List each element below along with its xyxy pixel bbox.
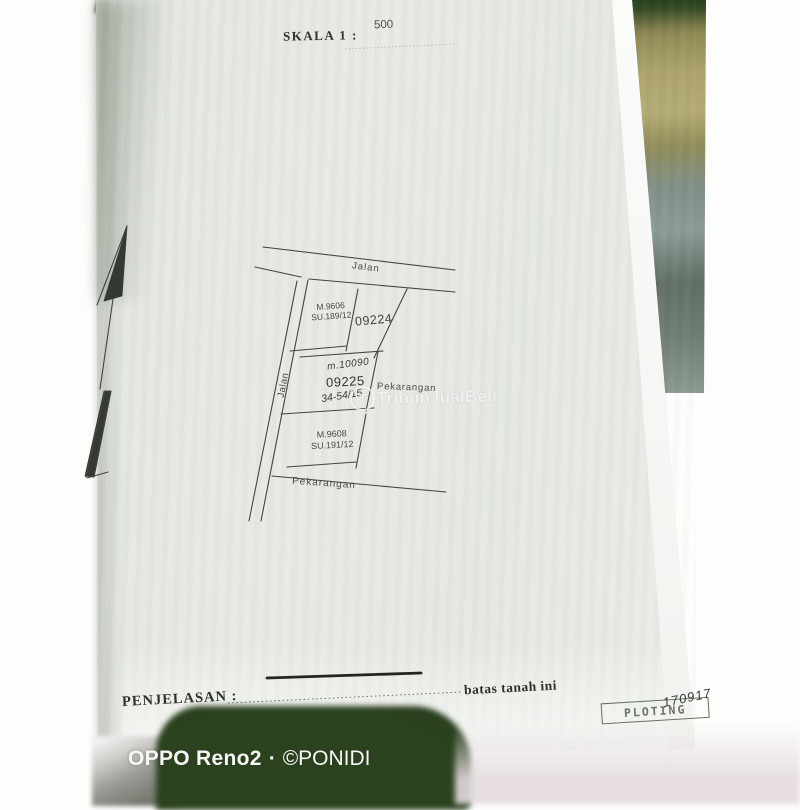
camera-watermark: OPPO Reno2 · ©PONIDI [128,747,371,771]
camera-device-name: OPPO Reno2 [128,747,262,771]
north-arrow-icon [85,226,127,478]
road-top-lower-line-left [255,267,301,277]
legend-solid-line [267,673,421,678]
parcel-survey: SU.191/12 [311,439,354,451]
parcel-m9608-label: M.9608 SU.191/12 [300,427,363,452]
parcel-survey: SU.189/12 [311,309,352,322]
parcel-m9606-label: M.9606 SU.189/12 [302,300,359,323]
camera-separator: · [269,747,276,771]
parcel-cert: M.9608 [316,428,347,440]
road-top-lower-line-right [309,279,455,292]
site-watermark-text: TribunJualBeli [377,386,497,408]
scale-value: 500 [374,19,394,32]
tribunjualbeli-logo-icon: T [350,386,375,411]
fabric-bottom-right [455,724,800,804]
legend-dotted-leader [228,692,462,703]
road-left-label: Jalan [263,365,303,405]
site-watermark: T TribunJualBeli [350,384,497,412]
scale-label: SKALA 1 : [283,27,358,44]
scale-dotted-rule [345,44,457,49]
camera-credit: ©PONIDI [283,747,371,771]
